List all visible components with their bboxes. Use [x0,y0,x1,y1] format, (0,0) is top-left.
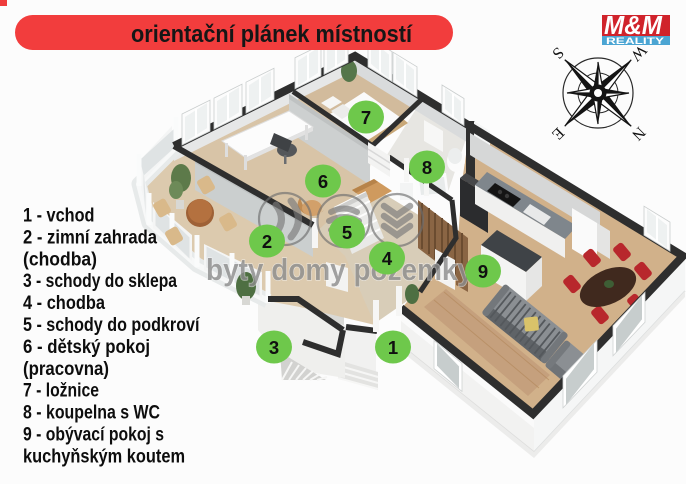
svg-text:8 - koupelna s WC: 8 - koupelna s WC [23,402,160,424]
svg-text:9 - obývací pokoj s: 9 - obývací pokoj s [23,424,164,446]
svg-text:6: 6 [318,171,328,192]
svg-text:kuchyňským koutem: kuchyňským koutem [23,445,185,467]
svg-text:byty domy pozemky: byty domy pozemky [206,252,474,287]
svg-text:5 - schody do podkroví: 5 - schody do podkroví [23,314,200,336]
svg-text:2: 2 [262,231,272,252]
svg-text:7 - ložnice: 7 - ložnice [23,380,99,402]
svg-text:1: 1 [388,337,398,358]
svg-text:orientační plánek místností: orientační plánek místností [131,21,413,48]
svg-text:4 - chodba: 4 - chodba [23,292,105,314]
svg-text:3 - schody do sklepa: 3 - schody do sklepa [23,270,177,292]
svg-text:5: 5 [342,222,352,243]
svg-text:1 - vchod: 1 - vchod [23,205,95,227]
svg-text:7: 7 [361,107,371,128]
svg-text:(pracovna): (pracovna) [23,358,109,380]
svg-text:(chodba): (chodba) [23,248,97,270]
svg-text:2 - zimní zahrada: 2 - zimní zahrada [23,226,157,248]
svg-text:9: 9 [478,261,488,282]
svg-text:3: 3 [269,337,279,358]
svg-text:4: 4 [382,248,393,269]
svg-text:6 - dětský pokoj: 6 - dětský pokoj [23,336,150,358]
svg-text:8: 8 [422,157,432,178]
